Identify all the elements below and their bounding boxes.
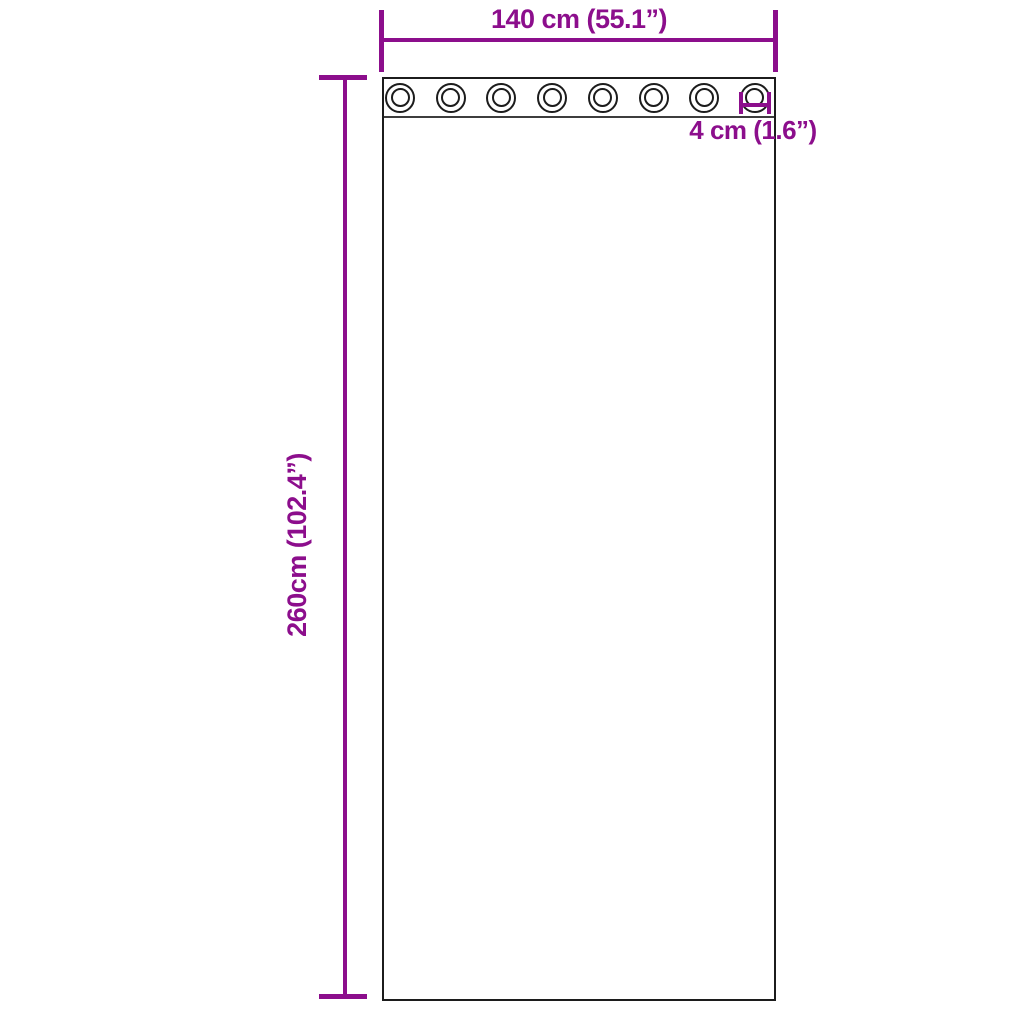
- grommet-inner-ring: [492, 88, 511, 107]
- width-dimension-tick-left: [379, 10, 384, 72]
- curtain-header-band: [384, 79, 774, 118]
- curtain-dimension-diagram: 140 cm (55.1”) 260cm (102.4”) 4 cm (1.6”…: [0, 0, 1024, 1024]
- grommet-eyelet: [740, 83, 770, 113]
- grommet-inner-ring: [441, 88, 460, 107]
- curtain-panel: [382, 77, 776, 1001]
- grommet-inner-ring: [543, 88, 562, 107]
- width-dimension-tick-right: [773, 10, 778, 72]
- grommet-eyelet: [385, 83, 415, 113]
- height-dimension-line: [343, 77, 347, 998]
- grommet-eyelet: [689, 83, 719, 113]
- height-dimension-label: 260cm (102.4”): [283, 395, 323, 695]
- grommet-eyelet: [486, 83, 516, 113]
- grommet-eyelet: [639, 83, 669, 113]
- grommet-eyelet: [537, 83, 567, 113]
- grommet-dimension-line: [741, 103, 770, 107]
- height-dimension-tick-bottom: [319, 994, 367, 999]
- grommet-inner-ring: [593, 88, 612, 107]
- grommet-inner-ring: [644, 88, 663, 107]
- grommet-eyelet: [436, 83, 466, 113]
- grommet-eyelet: [588, 83, 618, 113]
- width-dimension-line: [381, 38, 777, 42]
- grommet-inner-ring: [695, 88, 714, 107]
- height-dimension-tick-top: [319, 75, 367, 80]
- width-dimension-label: 140 cm (55.1”): [382, 5, 776, 35]
- grommet-inner-ring: [391, 88, 410, 107]
- grommet-dimension-label: 4 cm (1.6”): [623, 116, 883, 145]
